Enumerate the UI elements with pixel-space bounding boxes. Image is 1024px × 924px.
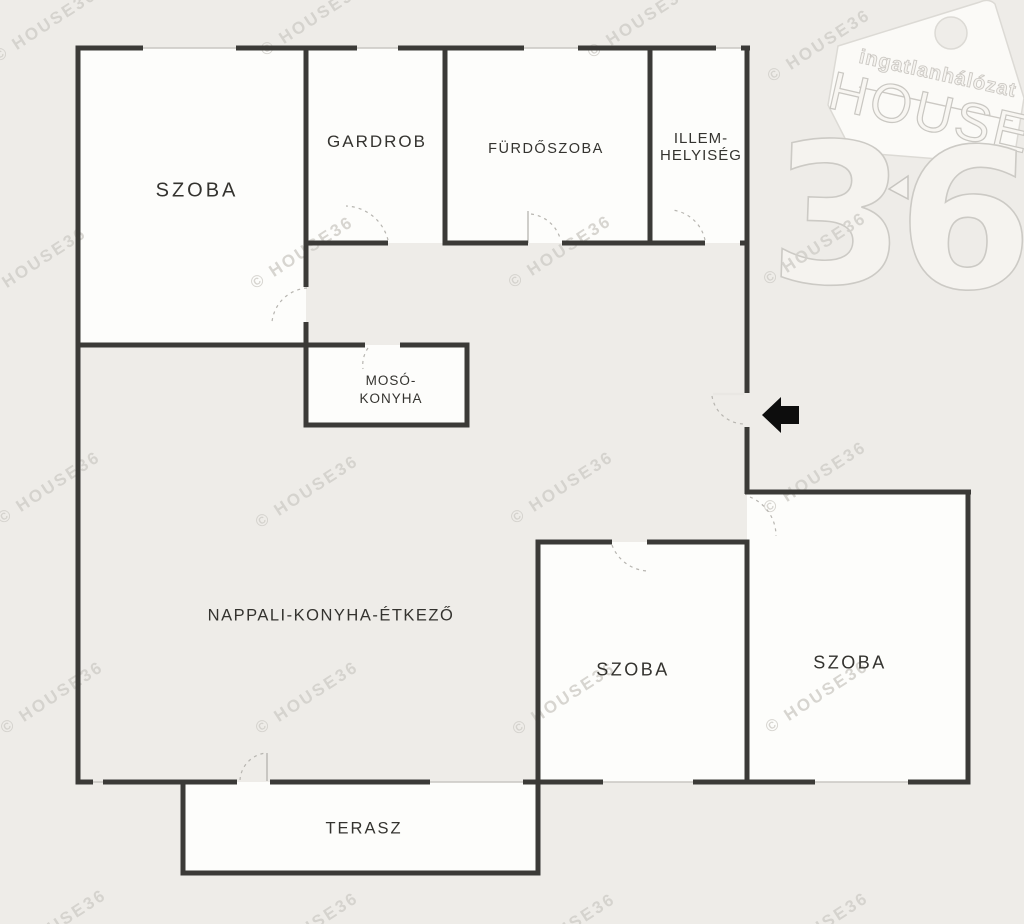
room-area-mosokonyha [306, 345, 467, 425]
entrance-arrow-icon [762, 397, 799, 433]
room-area-szoba-top [78, 48, 306, 345]
logo-tag-hole [935, 17, 967, 49]
room-area-szoba-bottom-left [538, 542, 747, 782]
watermark-text: © HOUSE36 [252, 451, 362, 532]
room-area-furdoszoba [445, 48, 650, 243]
watermark-text: © HOUSE36 [0, 885, 110, 924]
room-area-szoba-bottom-right [747, 492, 968, 782]
floor-plan-page: ingatlanhálózat HOUSE 36 © HOUSE36© HOUS… [0, 0, 1024, 924]
watermark-text: © HOUSE36 [0, 657, 107, 738]
logo-number-36: 36 [766, 100, 1024, 336]
watermark-text: © HOUSE36 [762, 888, 872, 924]
room-area-illemhelyiseg [650, 48, 747, 243]
watermark-text: © HOUSE36 [252, 888, 362, 924]
watermark-text: © HOUSE36 [507, 447, 617, 528]
watermark-text: © HOUSE36 [252, 657, 362, 738]
room-area-gardrob [306, 48, 445, 243]
watermark-text: © HOUSE36 [0, 447, 104, 528]
watermark-text: © HOUSE36 [509, 889, 619, 924]
room-area-terasz [183, 782, 538, 873]
floor-plan-drawing: ingatlanhálózat HOUSE 36 © HOUSE36© HOUS… [0, 0, 1024, 924]
